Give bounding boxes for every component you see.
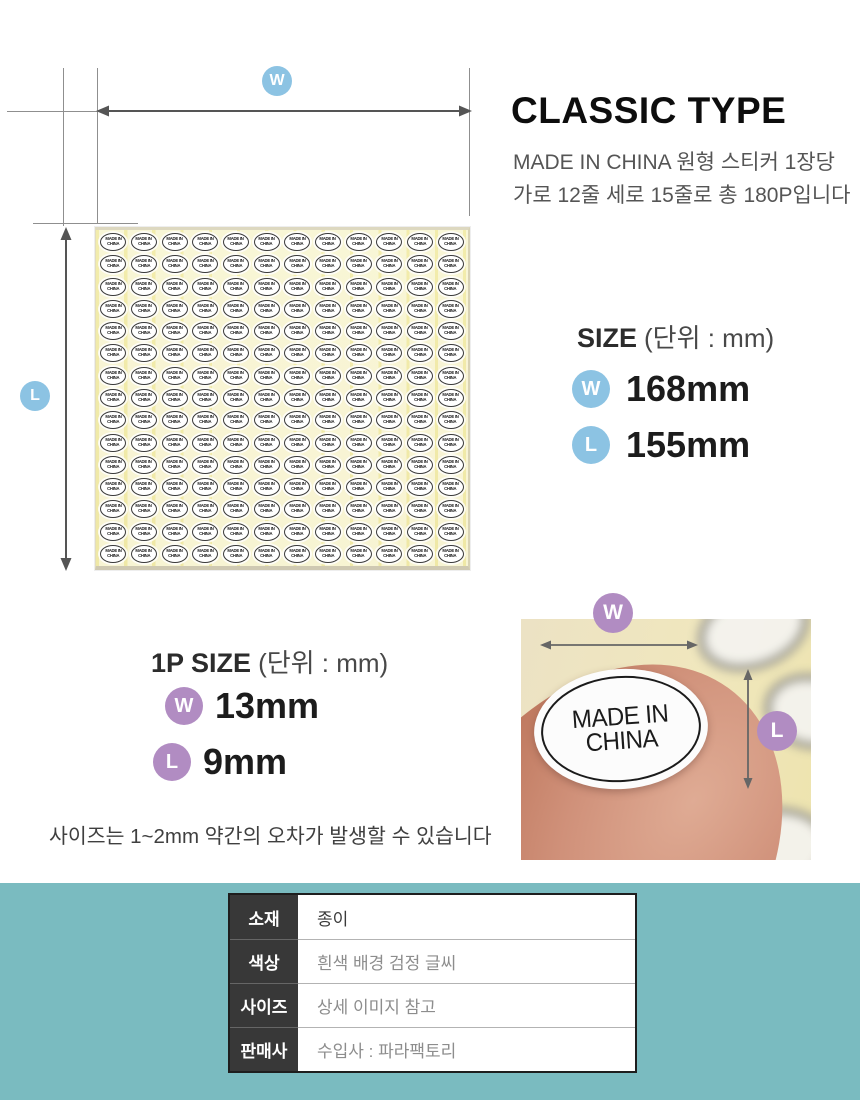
made-in-china-sticker: MADE INCHINA [100, 523, 126, 541]
made-in-china-sticker: MADE INCHINA [223, 255, 249, 273]
made-in-china-sticker: MADE INCHINA [346, 255, 372, 273]
made-in-china-sticker: MADE INCHINA [438, 389, 464, 407]
made-in-china-sticker: MADE INCHINA [284, 500, 310, 518]
product-description: MADE IN CHINA 원형 스티커 1장당 가로 12줄 세로 15줄로 … [513, 146, 850, 212]
made-in-china-sticker: MADE INCHINA [376, 233, 402, 251]
made-in-china-sticker: MADE INCHINA [223, 411, 249, 429]
made-in-china-sticker: MADE INCHINA [131, 389, 157, 407]
made-in-china-sticker: MADE INCHINA [254, 456, 280, 474]
made-in-china-sticker: MADE INCHINA [438, 367, 464, 385]
made-in-china-sticker: MADE INCHINA [376, 255, 402, 273]
made-in-china-sticker: MADE INCHINA [162, 545, 188, 563]
made-in-china-sticker: MADE INCHINA [131, 411, 157, 429]
width-badge: W [262, 66, 292, 96]
made-in-china-sticker: MADE INCHINA [192, 500, 218, 518]
made-in-china-sticker: MADE INCHINA [131, 233, 157, 251]
made-in-china-sticker: MADE INCHINA [192, 523, 218, 541]
made-in-china-sticker: MADE INCHINA [192, 545, 218, 563]
made-in-china-sticker: MADE INCHINA [192, 434, 218, 452]
made-in-china-sticker: MADE INCHINA [284, 322, 310, 340]
made-in-china-sticker: MADE INCHINA [162, 411, 188, 429]
made-in-china-sticker: MADE INCHINA [162, 478, 188, 496]
made-in-china-sticker: MADE INCHINA [376, 523, 402, 541]
made-in-china-sticker: MADE INCHINA [346, 434, 372, 452]
made-in-china-sticker: MADE INCHINA [438, 456, 464, 474]
photo-width-badge: W [593, 593, 633, 633]
made-in-china-sticker: MADE INCHINA [346, 500, 372, 518]
spec-row-color: 색상 흰색 배경 검정 글씨 [230, 939, 635, 983]
made-in-china-sticker: MADE INCHINA [254, 434, 280, 452]
extension-line [469, 68, 470, 216]
made-in-china-sticker: MADE INCHINA [346, 344, 372, 362]
made-in-china-sticker: MADE INCHINA [192, 478, 218, 496]
made-in-china-sticker: MADE INCHINA [315, 255, 341, 273]
made-in-china-sticker: MADE INCHINA [438, 255, 464, 273]
sticker-text-line2: CHINA [573, 726, 671, 757]
made-in-china-sticker: MADE INCHINA [223, 278, 249, 296]
made-in-china-sticker: MADE INCHINA [315, 389, 341, 407]
made-in-china-sticker: MADE INCHINA [223, 500, 249, 518]
made-in-china-sticker: MADE INCHINA [438, 500, 464, 518]
made-in-china-sticker: MADE INCHINA [407, 389, 433, 407]
made-in-china-sticker: MADE INCHINA [438, 344, 464, 362]
made-in-china-sticker: MADE INCHINA [438, 434, 464, 452]
size-row-width: W 168mm [572, 368, 750, 410]
made-in-china-sticker: MADE INCHINA [131, 456, 157, 474]
made-in-china-sticker: MADE INCHINA [100, 456, 126, 474]
sticker-sheet-image: MADE INCHINAMADE INCHINAMADE INCHINAMADE… [95, 227, 470, 570]
made-in-china-sticker: MADE INCHINA [407, 322, 433, 340]
made-in-china-sticker: MADE INCHINA [284, 233, 310, 251]
made-in-china-sticker: MADE INCHINA [162, 389, 188, 407]
made-in-china-sticker: MADE INCHINA [346, 456, 372, 474]
size-row-length: L 155mm [572, 424, 750, 466]
made-in-china-sticker: MADE INCHINA [254, 278, 280, 296]
made-in-china-sticker: MADE INCHINA [346, 411, 372, 429]
spec-label: 소재 [230, 895, 298, 939]
made-in-china-sticker: MADE INCHINA [438, 478, 464, 496]
spec-label: 판매사 [230, 1027, 298, 1071]
made-in-china-sticker: MADE INCHINA [100, 322, 126, 340]
made-in-china-sticker: MADE INCHINA [315, 434, 341, 452]
made-in-china-sticker: MADE INCHINA [162, 233, 188, 251]
made-in-china-sticker: MADE INCHINA [407, 478, 433, 496]
made-in-china-sticker: MADE INCHINA [254, 255, 280, 273]
made-in-china-sticker: MADE INCHINA [192, 344, 218, 362]
photo-width-arrow [539, 637, 699, 653]
product-type-title: CLASSIC TYPE [511, 90, 786, 132]
made-in-china-sticker: MADE INCHINA [438, 300, 464, 318]
one-piece-row-width: W 13mm [165, 685, 319, 727]
made-in-china-sticker: MADE INCHINA [100, 255, 126, 273]
spec-value: 수입사 : 파라팩토리 [298, 1027, 635, 1071]
made-in-china-sticker: MADE INCHINA [346, 233, 372, 251]
spec-row-material: 소재 종이 [230, 895, 635, 939]
made-in-china-sticker: MADE INCHINA [407, 411, 433, 429]
length-badge: L [153, 743, 191, 781]
size-heading-unit: (단위 : mm) [644, 323, 774, 353]
made-in-china-sticker: MADE INCHINA [407, 278, 433, 296]
made-in-china-sticker: MADE INCHINA [223, 344, 249, 362]
length-value: 155mm [626, 424, 750, 466]
made-in-china-sticker: MADE INCHINA [162, 456, 188, 474]
made-in-china-sticker: MADE INCHINA [438, 545, 464, 563]
spec-table: 소재 종이 색상 흰색 배경 검정 글씨 사이즈 상세 이미지 참고 판매사 수… [228, 893, 637, 1073]
made-in-china-sticker: MADE INCHINA [315, 300, 341, 318]
made-in-china-sticker: MADE INCHINA [284, 523, 310, 541]
length-value: 9mm [203, 741, 287, 783]
made-in-china-sticker: MADE INCHINA [192, 300, 218, 318]
made-in-china-sticker: MADE INCHINA [315, 523, 341, 541]
made-in-china-sticker: MADE INCHINA [223, 367, 249, 385]
length-dimension-arrow [57, 226, 75, 572]
made-in-china-sticker: MADE INCHINA [376, 434, 402, 452]
made-in-china-sticker: MADE INCHINA [376, 478, 402, 496]
spec-label: 색상 [230, 939, 298, 983]
extension-line [33, 223, 138, 224]
made-in-china-sticker: MADE INCHINA [131, 523, 157, 541]
extension-line [63, 68, 64, 226]
made-in-china-sticker: MADE INCHINA [284, 411, 310, 429]
made-in-china-sticker: MADE INCHINA [315, 500, 341, 518]
made-in-china-sticker: MADE INCHINA [315, 545, 341, 563]
size-heading-label: SIZE [577, 323, 637, 353]
made-in-china-sticker: MADE INCHINA [346, 322, 372, 340]
made-in-china-sticker: MADE INCHINA [407, 300, 433, 318]
made-in-china-sticker: MADE INCHINA [407, 233, 433, 251]
spec-label: 사이즈 [230, 983, 298, 1027]
made-in-china-sticker: MADE INCHINA [315, 478, 341, 496]
made-in-china-sticker: MADE INCHINA [254, 233, 280, 251]
made-in-china-sticker: MADE INCHINA [223, 389, 249, 407]
made-in-china-sticker: MADE INCHINA [438, 411, 464, 429]
made-in-china-sticker: MADE INCHINA [407, 367, 433, 385]
made-in-china-sticker: MADE INCHINA [192, 411, 218, 429]
made-in-china-sticker: MADE INCHINA [223, 456, 249, 474]
made-in-china-sticker: MADE INCHINA [192, 233, 218, 251]
made-in-china-sticker: MADE INCHINA [192, 322, 218, 340]
made-in-china-sticker: MADE INCHINA [346, 545, 372, 563]
extension-line [97, 68, 98, 223]
made-in-china-sticker: MADE INCHINA [162, 255, 188, 273]
width-value: 168mm [626, 368, 750, 410]
made-in-china-sticker: MADE INCHINA [131, 500, 157, 518]
made-in-china-sticker: MADE INCHINA [407, 434, 433, 452]
made-in-china-sticker: MADE INCHINA [407, 344, 433, 362]
width-dimension-arrow [95, 102, 473, 120]
made-in-china-sticker: MADE INCHINA [192, 367, 218, 385]
product-description-line2: 가로 12줄 세로 15줄로 총 180P입니다 [513, 179, 850, 212]
made-in-china-sticker: MADE INCHINA [131, 434, 157, 452]
made-in-china-sticker: MADE INCHINA [376, 300, 402, 318]
made-in-china-sticker: MADE INCHINA [254, 389, 280, 407]
made-in-china-sticker: MADE INCHINA [438, 322, 464, 340]
made-in-china-sticker: MADE INCHINA [100, 278, 126, 296]
spec-value: 종이 [298, 895, 635, 939]
made-in-china-sticker: MADE INCHINA [131, 478, 157, 496]
made-in-china-sticker: MADE INCHINA [284, 367, 310, 385]
made-in-china-sticker: MADE INCHINA [376, 367, 402, 385]
made-in-china-sticker: MADE INCHINA [100, 233, 126, 251]
made-in-china-sticker: MADE INCHINA [100, 411, 126, 429]
made-in-china-sticker: MADE INCHINA [100, 300, 126, 318]
made-in-china-sticker: MADE INCHINA [162, 434, 188, 452]
made-in-china-sticker: MADE INCHINA [223, 322, 249, 340]
made-in-china-sticker: MADE INCHINA [315, 367, 341, 385]
width-value: 13mm [215, 685, 319, 727]
made-in-china-sticker: MADE INCHINA [376, 411, 402, 429]
made-in-china-sticker: MADE INCHINA [284, 434, 310, 452]
size-tolerance-note: 사이즈는 1~2mm 약간의 오차가 발생할 수 있습니다 [49, 819, 492, 849]
width-badge: W [572, 370, 610, 408]
made-in-china-sticker: MADE INCHINA [100, 500, 126, 518]
made-in-china-sticker: MADE INCHINA [254, 523, 280, 541]
photo-length-badge: L [757, 711, 797, 751]
made-in-china-sticker: MADE INCHINA [162, 367, 188, 385]
made-in-china-sticker: MADE INCHINA [131, 322, 157, 340]
made-in-china-sticker: MADE INCHINA [254, 344, 280, 362]
made-in-china-sticker: MADE INCHINA [376, 456, 402, 474]
made-in-china-sticker: MADE INCHINA [376, 278, 402, 296]
made-in-china-sticker: MADE INCHINA [376, 545, 402, 563]
made-in-china-sticker: MADE INCHINA [315, 411, 341, 429]
made-in-china-sticker: MADE INCHINA [284, 456, 310, 474]
made-in-china-sticker: MADE INCHINA [407, 523, 433, 541]
made-in-china-sticker: MADE INCHINA [131, 300, 157, 318]
made-in-china-sticker: MADE INCHINA [162, 523, 188, 541]
made-in-china-sticker: MADE INCHINA [254, 411, 280, 429]
length-badge: L [572, 426, 610, 464]
made-in-china-sticker: MADE INCHINA [346, 278, 372, 296]
made-in-china-sticker: MADE INCHINA [162, 322, 188, 340]
made-in-china-sticker: MADE INCHINA [100, 434, 126, 452]
one-piece-row-length: L 9mm [153, 741, 287, 783]
one-piece-size-heading-unit: (단위 : mm) [258, 648, 388, 678]
extension-line [7, 111, 98, 112]
made-in-china-sticker: MADE INCHINA [192, 278, 218, 296]
made-in-china-sticker: MADE INCHINA [100, 344, 126, 362]
made-in-china-sticker: MADE INCHINA [315, 278, 341, 296]
made-in-china-sticker: MADE INCHINA [192, 389, 218, 407]
made-in-china-sticker: MADE INCHINA [131, 367, 157, 385]
made-in-china-sticker: MADE INCHINA [254, 367, 280, 385]
made-in-china-sticker: MADE INCHINA [100, 545, 126, 563]
made-in-china-sticker: MADE INCHINA [284, 255, 310, 273]
made-in-china-sticker: MADE INCHINA [376, 344, 402, 362]
photo-length-arrow [740, 668, 756, 790]
made-in-china-sticker: MADE INCHINA [346, 478, 372, 496]
made-in-china-sticker: MADE INCHINA [223, 434, 249, 452]
made-in-china-sticker: MADE INCHINA [131, 255, 157, 273]
product-photo: MADE IN CHINA W L [521, 619, 811, 860]
one-piece-size-heading: 1P SIZE(단위 : mm) [151, 643, 388, 680]
made-in-china-sticker: MADE INCHINA [162, 278, 188, 296]
made-in-china-sticker: MADE INCHINA [223, 523, 249, 541]
made-in-china-sticker: MADE INCHINA [254, 478, 280, 496]
made-in-china-sticker: MADE INCHINA [346, 523, 372, 541]
spec-row-seller: 판매사 수입사 : 파라팩토리 [230, 1027, 635, 1071]
made-in-china-sticker: MADE INCHINA [131, 278, 157, 296]
made-in-china-sticker: MADE INCHINA [315, 344, 341, 362]
made-in-china-sticker: MADE INCHINA [346, 300, 372, 318]
made-in-china-sticker: MADE INCHINA [162, 344, 188, 362]
made-in-china-sticker: MADE INCHINA [376, 322, 402, 340]
made-in-china-sticker: MADE INCHINA [162, 300, 188, 318]
made-in-china-sticker: MADE INCHINA [131, 344, 157, 362]
made-in-china-sticker: MADE INCHINA [284, 478, 310, 496]
product-detail-page: W L MADE INCHINAMADE INCHINAMADE INCHINA… [0, 0, 860, 1100]
made-in-china-sticker: MADE INCHINA [438, 523, 464, 541]
made-in-china-sticker: MADE INCHINA [284, 344, 310, 362]
made-in-china-sticker: MADE INCHINA [100, 389, 126, 407]
made-in-china-sticker: MADE INCHINA [315, 322, 341, 340]
made-in-china-sticker: MADE INCHINA [284, 545, 310, 563]
one-piece-size-heading-label: 1P SIZE [151, 648, 251, 678]
made-in-china-sticker: MADE INCHINA [254, 300, 280, 318]
made-in-china-sticker: MADE INCHINA [100, 367, 126, 385]
made-in-china-sticker: MADE INCHINA [284, 300, 310, 318]
width-badge: W [165, 687, 203, 725]
made-in-china-sticker: MADE INCHINA [254, 545, 280, 563]
made-in-china-sticker: MADE INCHINA [407, 255, 433, 273]
made-in-china-sticker: MADE INCHINA [376, 389, 402, 407]
made-in-china-sticker: MADE INCHINA [315, 233, 341, 251]
made-in-china-sticker: MADE INCHINA [254, 500, 280, 518]
made-in-china-sticker: MADE INCHINA [407, 456, 433, 474]
made-in-china-sticker: MADE INCHINA [162, 500, 188, 518]
made-in-china-sticker: MADE INCHINA [346, 389, 372, 407]
sticker-closeup-text: MADE IN CHINA [571, 702, 671, 757]
spec-value: 흰색 배경 검정 글씨 [298, 939, 635, 983]
sticker-grid: MADE INCHINAMADE INCHINAMADE INCHINAMADE… [96, 230, 468, 566]
made-in-china-sticker: MADE INCHINA [438, 233, 464, 251]
spec-value: 상세 이미지 참고 [298, 983, 635, 1027]
spec-row-size: 사이즈 상세 이미지 참고 [230, 983, 635, 1027]
product-description-line1: MADE IN CHINA 원형 스티커 1장당 [513, 146, 850, 179]
made-in-china-sticker: MADE INCHINA [100, 478, 126, 496]
made-in-china-sticker: MADE INCHINA [254, 322, 280, 340]
made-in-china-sticker: MADE INCHINA [192, 456, 218, 474]
made-in-china-sticker: MADE INCHINA [315, 456, 341, 474]
made-in-china-sticker: MADE INCHINA [223, 300, 249, 318]
size-heading: SIZE(단위 : mm) [577, 318, 774, 355]
made-in-china-sticker: MADE INCHINA [407, 500, 433, 518]
made-in-china-sticker: MADE INCHINA [407, 545, 433, 563]
made-in-china-sticker: MADE INCHINA [284, 278, 310, 296]
made-in-china-sticker: MADE INCHINA [223, 478, 249, 496]
made-in-china-sticker: MADE INCHINA [346, 367, 372, 385]
length-badge: L [20, 381, 50, 411]
made-in-china-sticker: MADE INCHINA [284, 389, 310, 407]
made-in-china-sticker: MADE INCHINA [376, 500, 402, 518]
made-in-china-sticker: MADE INCHINA [438, 278, 464, 296]
made-in-china-sticker: MADE INCHINA [192, 255, 218, 273]
made-in-china-sticker: MADE INCHINA [223, 545, 249, 563]
made-in-china-sticker: MADE INCHINA [131, 545, 157, 563]
made-in-china-sticker: MADE INCHINA [223, 233, 249, 251]
